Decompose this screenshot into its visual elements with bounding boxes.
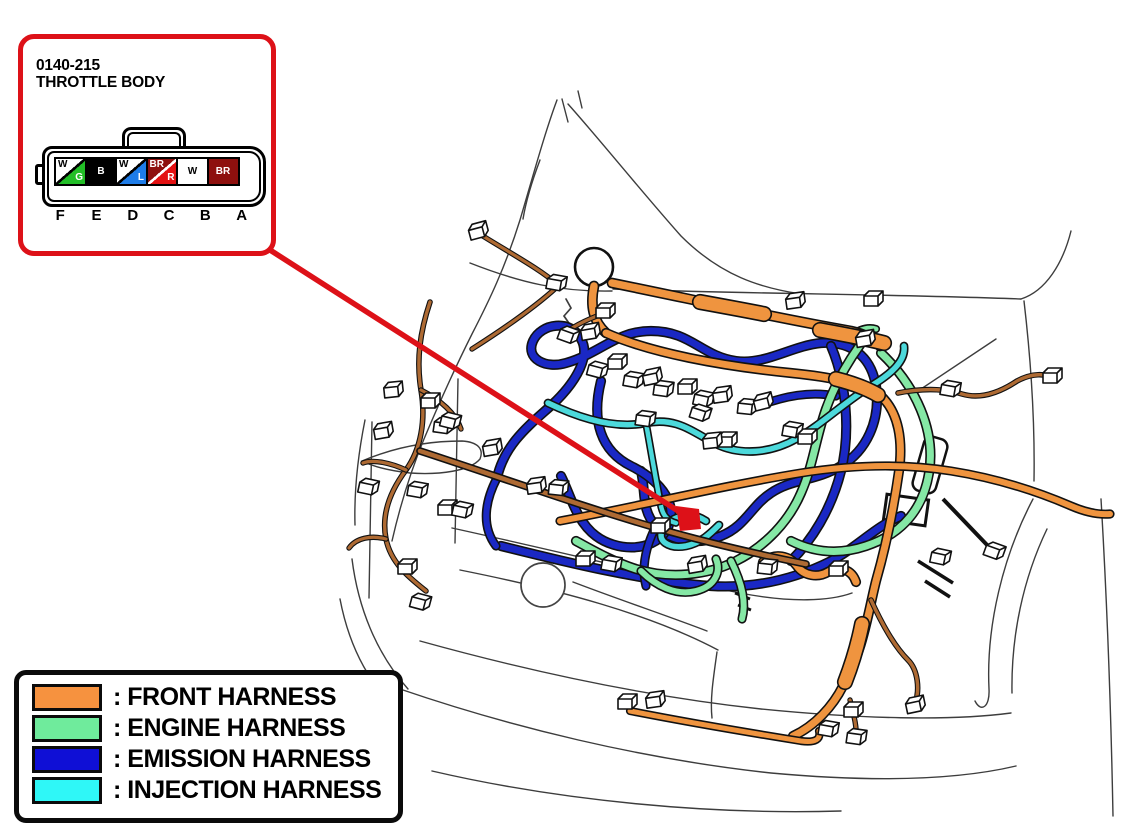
throttle-body-location-marker	[676, 506, 701, 531]
connector-box	[618, 694, 637, 709]
connector-box	[576, 551, 595, 566]
branch-wire	[898, 375, 1053, 396]
connector-box	[586, 360, 608, 379]
connector-box	[596, 303, 615, 318]
pin-label-A: A	[223, 207, 259, 224]
pin-label-B: B	[187, 207, 223, 224]
legend-swatch-engine	[32, 715, 102, 742]
connector-box	[651, 518, 670, 533]
connector-box	[798, 429, 817, 444]
front-harness-path	[630, 711, 819, 742]
pin-label-E: E	[78, 207, 114, 224]
connector-box	[846, 728, 867, 745]
legend-swatch-emission	[32, 746, 102, 773]
connector-pin-D: WL	[115, 157, 148, 186]
branch-wire	[478, 233, 558, 285]
legend-label-front: : FRONT HARNESS	[113, 683, 336, 712]
connector-box	[844, 702, 863, 717]
firewall-grommet	[575, 248, 613, 286]
connector-pin-A: BR	[207, 157, 240, 186]
legend-swatch-front	[32, 684, 102, 711]
legend-row-front-harness: : FRONT HARNESS	[32, 682, 398, 713]
car-body-outline	[340, 91, 1113, 816]
connector-box	[482, 438, 503, 456]
legend-label-emission: : EMISSION HARNESS	[113, 745, 371, 774]
connector-box	[383, 381, 403, 398]
connector-box	[373, 421, 394, 439]
connector-box	[712, 386, 733, 403]
legend-swatch-injection	[32, 777, 102, 804]
connector-box	[358, 477, 380, 496]
connector-pin-B: W	[176, 157, 209, 186]
connector-box	[548, 479, 568, 496]
connector-box	[678, 379, 697, 394]
legend-label-engine: : ENGINE HARNESS	[113, 714, 345, 743]
front-harness-tape	[700, 302, 764, 314]
legend-row-emission-harness: : EMISSION HARNESS	[32, 744, 398, 775]
connector-box	[757, 558, 777, 575]
connector-box	[398, 559, 417, 574]
harness-legend: : FRONT HARNESS: ENGINE HARNESS: EMISSIO…	[14, 670, 403, 823]
connector-pin-E: B	[85, 157, 118, 186]
branch-wire	[349, 537, 386, 548]
connector-box	[1043, 368, 1062, 383]
legend-row-injection-harness: : INJECTION HARNESS	[32, 775, 398, 806]
connector-box	[608, 354, 627, 369]
connector-box	[407, 481, 428, 499]
connector-box	[752, 392, 774, 411]
legend-label-injection: : INJECTION HARNESS	[113, 776, 381, 805]
branch-wire	[871, 600, 918, 703]
harness-wiring	[349, 233, 1110, 742]
pin-label-D: D	[115, 207, 151, 224]
connector-pin-F: WG	[54, 157, 87, 186]
connector-pin-C: BRR	[146, 157, 179, 186]
connector-pins: WGBWLBRRWBR	[54, 157, 240, 186]
connector-pin-labels: FEDCBA	[42, 207, 260, 224]
connector-box	[623, 371, 644, 389]
connector-diagram: WGBWLBRRWBR FEDCBA	[23, 39, 271, 251]
connector-housing: WGBWLBRRWBR	[42, 146, 266, 207]
diagram-canvas: 0140-215 THROTTLE BODY WGBWLBRRWBR FEDCB…	[0, 0, 1122, 828]
grille-emblem	[521, 563, 565, 607]
connector-box	[829, 561, 848, 576]
connector-box	[421, 393, 440, 408]
throttle-body-callout: 0140-215 THROTTLE BODY WGBWLBRRWBR FEDCB…	[18, 34, 276, 256]
connector-box	[785, 292, 806, 309]
connector-box	[864, 291, 883, 306]
pin-label-C: C	[151, 207, 187, 224]
connector-box	[905, 695, 927, 714]
pin-label-F: F	[42, 207, 78, 224]
connector-box	[930, 547, 952, 566]
legend-row-engine-harness: : ENGINE HARNESS	[32, 713, 398, 744]
connector-box	[409, 592, 431, 611]
